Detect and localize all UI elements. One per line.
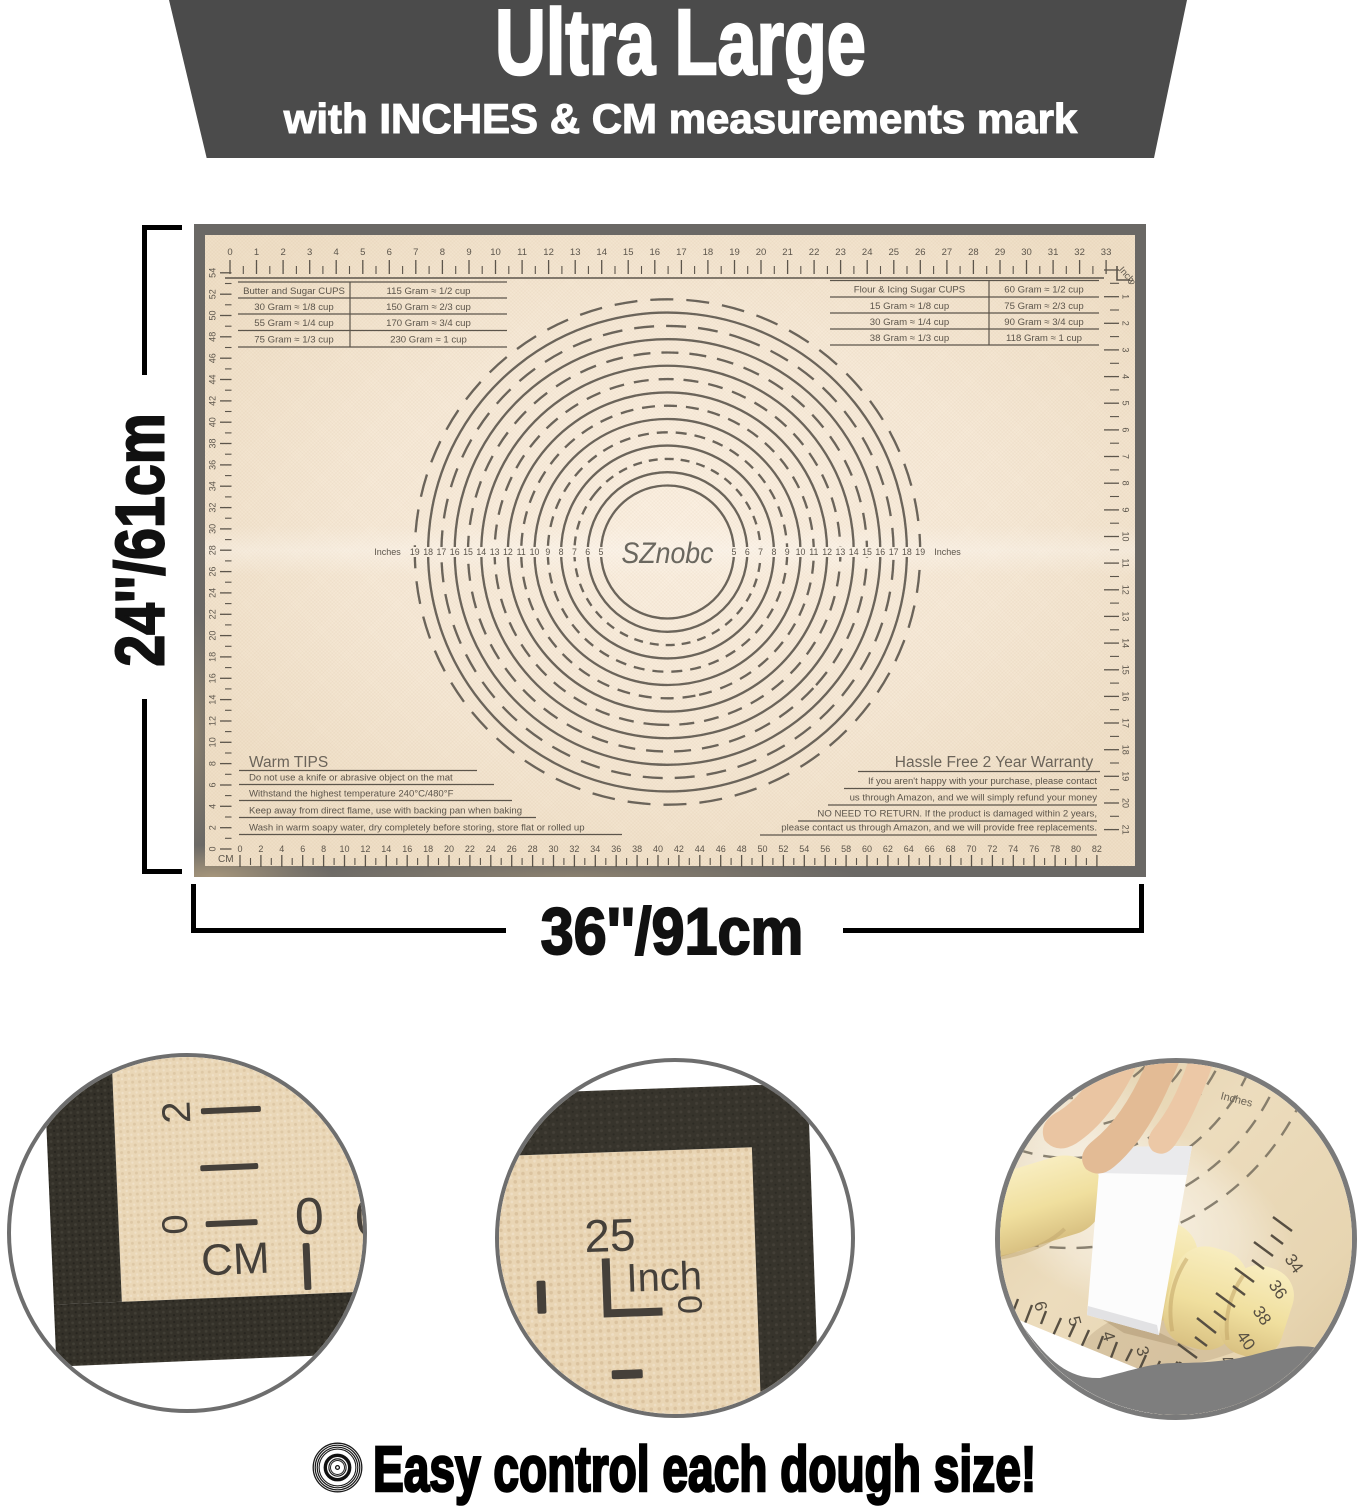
svg-text:48: 48: [207, 332, 217, 342]
svg-text:Butter and Sugar CUPS: Butter and Sugar CUPS: [243, 286, 345, 297]
svg-text:10: 10: [490, 247, 501, 258]
svg-text:12: 12: [822, 547, 832, 557]
svg-text:0: 0: [294, 1187, 325, 1246]
svg-text:13: 13: [836, 547, 846, 557]
svg-text:74: 74: [1008, 844, 1018, 854]
svg-text:6: 6: [300, 844, 305, 854]
svg-text:32: 32: [569, 844, 579, 854]
svg-text:17: 17: [889, 547, 899, 557]
svg-text:12: 12: [207, 716, 217, 726]
svg-text:0: 0: [354, 1189, 363, 1248]
svg-text:4: 4: [207, 804, 217, 809]
svg-text:6: 6: [207, 782, 217, 787]
svg-text:Withstand the highest temperat: Withstand the highest temperature 240°C/…: [249, 789, 454, 800]
svg-text:5: 5: [1121, 401, 1131, 406]
svg-text:CM: CM: [200, 1234, 270, 1286]
svg-text:50: 50: [207, 310, 217, 320]
svg-text:22: 22: [207, 609, 217, 619]
svg-text:19: 19: [1121, 771, 1131, 781]
svg-text:54: 54: [799, 844, 809, 854]
svg-text:72: 72: [987, 844, 997, 854]
svg-text:80: 80: [1071, 844, 1081, 854]
svg-text:20: 20: [207, 631, 217, 641]
svg-text:4: 4: [279, 844, 284, 854]
svg-text:36: 36: [207, 460, 217, 470]
svg-text:44: 44: [207, 374, 217, 384]
svg-text:10: 10: [339, 844, 349, 854]
svg-text:15 Gram ≈ 1/8 cup: 15 Gram ≈ 1/8 cup: [870, 301, 949, 312]
svg-text:230 Gram ≈ 1 cup: 230 Gram ≈ 1 cup: [390, 335, 467, 346]
svg-text:3: 3: [1121, 347, 1131, 352]
svg-text:28: 28: [207, 545, 217, 555]
svg-text:19: 19: [729, 247, 740, 258]
svg-text:5: 5: [360, 247, 365, 258]
svg-text:21: 21: [1121, 825, 1131, 835]
svg-text:8: 8: [1121, 481, 1131, 486]
svg-text:10: 10: [796, 547, 806, 557]
svg-text:1: 1: [1121, 294, 1131, 299]
svg-text:25: 25: [889, 247, 900, 258]
svg-text:20: 20: [444, 844, 454, 854]
svg-text:38 Gram ≈ 1/3 cup: 38 Gram ≈ 1/3 cup: [870, 333, 949, 344]
svg-text:48: 48: [737, 844, 747, 854]
svg-text:14: 14: [381, 844, 391, 854]
svg-text:7: 7: [572, 547, 577, 557]
svg-text:Keep away from direct flame, u: Keep away from direct flame, use with ba…: [249, 806, 522, 817]
svg-text:12: 12: [360, 844, 370, 854]
svg-text:6: 6: [585, 547, 590, 557]
svg-text:36: 36: [611, 844, 621, 854]
svg-text:26: 26: [507, 844, 517, 854]
svg-text:0: 0: [237, 844, 242, 854]
svg-text:31: 31: [1048, 247, 1059, 258]
svg-text:17: 17: [1121, 718, 1131, 728]
svg-text:70: 70: [966, 844, 976, 854]
svg-text:54: 54: [207, 268, 217, 278]
svg-text:0: 0: [154, 1214, 196, 1236]
svg-text:18: 18: [423, 844, 433, 854]
svg-text:14: 14: [849, 547, 859, 557]
svg-text:66: 66: [925, 844, 935, 854]
svg-text:24: 24: [207, 588, 217, 598]
svg-text:2: 2: [280, 247, 285, 258]
svg-text:11: 11: [1121, 558, 1131, 567]
svg-text:23: 23: [835, 247, 846, 258]
svg-text:5: 5: [732, 547, 737, 557]
svg-text:18: 18: [207, 652, 217, 662]
svg-text:15: 15: [1121, 665, 1131, 675]
svg-text:9: 9: [1121, 507, 1131, 512]
svg-text:68: 68: [946, 844, 956, 854]
svg-text:33: 33: [1101, 247, 1112, 258]
svg-text:15: 15: [623, 247, 634, 258]
svg-text:us through Amazon, and we wil: us through Amazon, and we will simply re…: [850, 793, 1098, 804]
svg-text:6: 6: [387, 247, 392, 258]
svg-text:17: 17: [676, 247, 687, 258]
svg-text:16: 16: [450, 547, 460, 557]
svg-text:118 Gram ≈ 1 cup: 118 Gram ≈ 1 cup: [1006, 333, 1082, 344]
svg-text:32: 32: [207, 503, 217, 513]
svg-text:Wash in warm soapy water, dry: Wash in warm soapy water, dry completely…: [249, 823, 585, 834]
svg-text:9: 9: [785, 547, 790, 557]
svg-text:19: 19: [915, 547, 925, 557]
svg-text:Warm TIPS: Warm TIPS: [249, 754, 328, 771]
svg-text:22: 22: [465, 844, 475, 854]
svg-text:14: 14: [1121, 638, 1131, 648]
svg-text:150 Gram ≈ 2/3 cup: 150 Gram ≈ 2/3 cup: [386, 302, 471, 313]
svg-text:42: 42: [674, 844, 684, 854]
svg-text:170 Gram ≈ 3/4 cup: 170 Gram ≈ 3/4 cup: [386, 318, 471, 329]
svg-text:46: 46: [207, 353, 217, 363]
svg-text:14: 14: [596, 247, 607, 258]
svg-text:6: 6: [745, 547, 750, 557]
svg-text:115 Gram ≈ 1/2 cup: 115 Gram ≈ 1/2 cup: [386, 286, 470, 297]
svg-text:SZnobc: SZnobc: [622, 537, 714, 570]
svg-text:26: 26: [207, 567, 217, 577]
svg-text:8: 8: [771, 547, 776, 557]
svg-text:28: 28: [968, 247, 979, 258]
svg-text:4: 4: [1121, 374, 1131, 379]
svg-text:12: 12: [543, 247, 554, 258]
svg-text:64: 64: [904, 844, 914, 854]
svg-text:1: 1: [254, 247, 259, 258]
svg-text:62: 62: [883, 844, 893, 854]
svg-text:11: 11: [809, 547, 818, 557]
svg-text:40: 40: [653, 844, 663, 854]
svg-text:20: 20: [1121, 798, 1131, 808]
svg-text:16: 16: [1121, 691, 1131, 701]
svg-text:18: 18: [1121, 745, 1131, 755]
svg-text:56: 56: [820, 844, 830, 854]
svg-text:2: 2: [1121, 321, 1131, 326]
svg-text:Hassle Free 2 Year Warranty: Hassle Free 2 Year Warranty: [895, 754, 1094, 771]
svg-text:20: 20: [756, 247, 767, 258]
svg-text:25: 25: [583, 1208, 636, 1262]
svg-text:8: 8: [321, 844, 326, 854]
svg-text:7: 7: [413, 247, 418, 258]
svg-text:18: 18: [703, 247, 714, 258]
svg-text:10: 10: [1121, 531, 1131, 541]
svg-text:19: 19: [410, 547, 420, 557]
svg-text:38: 38: [632, 844, 642, 854]
svg-text:14: 14: [476, 547, 486, 557]
svg-text:34: 34: [590, 844, 600, 854]
svg-text:12: 12: [503, 547, 513, 557]
svg-text:34: 34: [207, 481, 217, 491]
svg-text:16: 16: [875, 547, 885, 557]
svg-text:If you aren't happy with your: If you aren't happy with your purchase, …: [868, 776, 1097, 787]
svg-text:Flour & Icing Sugar CUPS: Flour & Icing Sugar CUPS: [854, 285, 965, 296]
svg-text:0: 0: [1126, 279, 1136, 284]
svg-text:please contact us through Amaz: please contact us through Amazon, and we…: [781, 823, 1097, 834]
svg-text:75 Gram ≈ 2/3 cup: 75 Gram ≈ 2/3 cup: [1004, 301, 1083, 312]
svg-text:CM: CM: [218, 854, 234, 865]
svg-text:Inch: Inch: [626, 1254, 703, 1301]
svg-text:60: 60: [862, 844, 872, 854]
svg-text:15: 15: [463, 547, 473, 557]
svg-text:26: 26: [915, 247, 926, 258]
svg-text:8: 8: [559, 547, 564, 557]
svg-text:2: 2: [258, 844, 263, 854]
svg-text:28: 28: [528, 844, 538, 854]
svg-text:3: 3: [307, 247, 312, 258]
svg-text:40: 40: [207, 417, 217, 427]
svg-text:30: 30: [207, 524, 217, 534]
svg-text:8: 8: [207, 761, 217, 766]
svg-text:0: 0: [227, 247, 232, 258]
svg-text:82: 82: [1092, 844, 1102, 854]
svg-text:6: 6: [1121, 427, 1131, 432]
svg-text:13: 13: [1121, 611, 1131, 621]
svg-text:0: 0: [670, 1294, 709, 1314]
svg-text:75 Gram ≈ 1/3 cup: 75 Gram ≈ 1/3 cup: [254, 335, 333, 346]
svg-text:2: 2: [154, 1100, 199, 1124]
svg-text:52: 52: [207, 289, 217, 299]
svg-text:21: 21: [782, 247, 793, 258]
svg-text:17: 17: [437, 547, 447, 557]
svg-text:Do not use a knife or abrasive: Do not use a knife or abrasive object on…: [249, 773, 453, 784]
svg-text:16: 16: [650, 247, 661, 258]
svg-text:10: 10: [530, 547, 540, 557]
svg-text:58: 58: [841, 844, 851, 854]
svg-text:16: 16: [402, 844, 412, 854]
svg-text:15: 15: [862, 547, 872, 557]
svg-text:13: 13: [490, 547, 500, 557]
svg-text:9: 9: [466, 247, 471, 258]
svg-text:52: 52: [778, 844, 788, 854]
svg-text:18: 18: [423, 547, 433, 557]
svg-text:46: 46: [716, 844, 726, 854]
svg-text:30: 30: [548, 844, 558, 854]
svg-text:30: 30: [1021, 247, 1032, 258]
svg-text:42: 42: [207, 396, 217, 406]
svg-text:4: 4: [334, 247, 339, 258]
svg-text:2: 2: [207, 825, 217, 830]
svg-text:24: 24: [486, 844, 496, 854]
svg-text:50: 50: [757, 844, 767, 854]
svg-text:12: 12: [1121, 585, 1131, 595]
svg-text:Inches: Inches: [934, 547, 961, 557]
svg-text:10: 10: [207, 737, 217, 747]
svg-text:32: 32: [1074, 247, 1085, 258]
svg-text:9: 9: [545, 547, 550, 557]
svg-text:29: 29: [995, 247, 1006, 258]
svg-text:7: 7: [1121, 454, 1131, 459]
svg-text:27: 27: [942, 247, 953, 258]
svg-text:NO NEED TO RETURN. If the prod: NO NEED TO RETURN. If the product is dam…: [817, 809, 1097, 820]
svg-text:30 Gram ≈ 1/4 cup: 30 Gram ≈ 1/4 cup: [870, 317, 949, 328]
svg-text:0: 0: [207, 846, 217, 851]
svg-text:78: 78: [1050, 844, 1060, 854]
svg-text:30 Gram ≈ 1/8 cup: 30 Gram ≈ 1/8 cup: [254, 302, 333, 313]
svg-text:22: 22: [809, 247, 820, 258]
svg-text:44: 44: [695, 844, 705, 854]
svg-text:18: 18: [902, 547, 912, 557]
svg-text:13: 13: [570, 247, 581, 258]
svg-text:76: 76: [1029, 844, 1039, 854]
svg-text:55 Gram ≈ 1/4 cup: 55 Gram ≈ 1/4 cup: [254, 318, 333, 329]
svg-text:7: 7: [758, 547, 763, 557]
svg-text:16: 16: [207, 673, 217, 683]
svg-text:5: 5: [599, 547, 604, 557]
svg-text:38: 38: [207, 438, 217, 448]
svg-text:60 Gram ≈ 1/2 cup: 60 Gram ≈ 1/2 cup: [1004, 285, 1083, 296]
svg-text:90 Gram ≈ 3/4 cup: 90 Gram ≈ 3/4 cup: [1004, 317, 1083, 328]
svg-text:14: 14: [207, 695, 217, 705]
svg-text:24: 24: [862, 247, 873, 258]
svg-text:11: 11: [517, 247, 527, 258]
svg-text:8: 8: [440, 247, 445, 258]
svg-text:Inches: Inches: [374, 547, 401, 557]
svg-text:11: 11: [517, 547, 526, 557]
